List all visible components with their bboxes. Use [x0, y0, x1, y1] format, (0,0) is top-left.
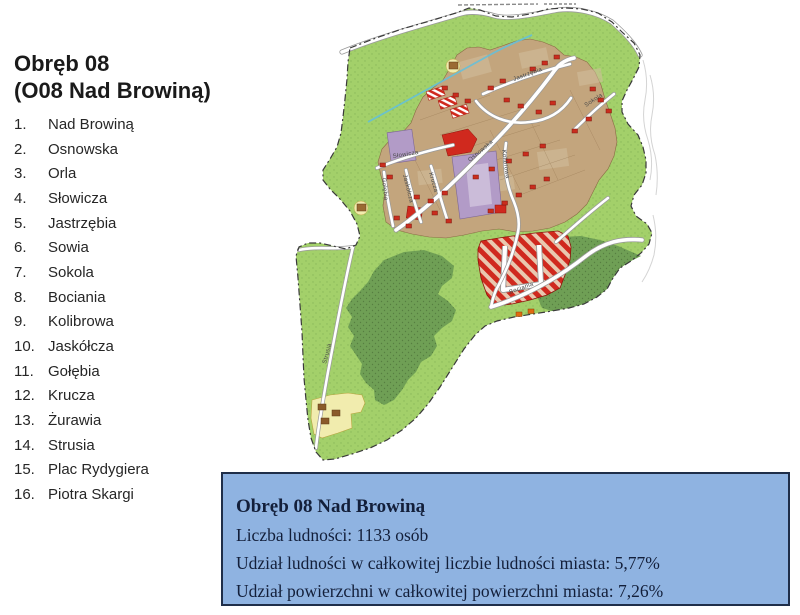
- street-number: 16.: [14, 486, 48, 503]
- street-name: Jaskółcza: [48, 338, 114, 355]
- street-number: 7.: [14, 264, 48, 281]
- info-area-share-line: Udział powierzchni w całkowitej powierzc…: [236, 577, 774, 605]
- street-list-item: 15.Plac Rydygiera: [14, 458, 149, 483]
- street-name: Sokola: [48, 264, 94, 281]
- street-list-item: 11.Gołębia: [14, 359, 149, 384]
- street-number: 14.: [14, 437, 48, 454]
- street-number: 9.: [14, 313, 48, 330]
- street-number: 5.: [14, 215, 48, 232]
- street-list-item: 14.Strusia: [14, 433, 149, 458]
- street-number: 15.: [14, 461, 48, 478]
- street-number: 4.: [14, 190, 48, 207]
- district-map-svg: Osnowska Słowicza Jastrzębia Sokola Koli…: [290, 0, 660, 465]
- street-list: 1.Nad Browiną 2.Osnowska 3.Orla 4.Słowic…: [14, 112, 149, 507]
- page-title: Obręb 08 (O08 Nad Browiną): [14, 50, 211, 104]
- district-title-line2: (O08 Nad Browiną): [14, 77, 211, 104]
- street-name: Orla: [48, 165, 76, 182]
- street-list-item: 13.Żurawia: [14, 408, 149, 433]
- street-name: Słowicza: [48, 190, 107, 207]
- street-list-item: 9.Kolibrowa: [14, 310, 149, 335]
- street-number: 13.: [14, 412, 48, 429]
- street-list-item: 7.Sokola: [14, 260, 149, 285]
- info-box-title: Obręb 08 Nad Browiną: [236, 493, 774, 521]
- street-name: Żurawia: [48, 412, 101, 429]
- street-number: 10.: [14, 338, 48, 355]
- street-list-item: 16.Piotra Skargi: [14, 482, 149, 507]
- district-info-box: Obręb 08 Nad Browiną Liczba ludności: 11…: [221, 472, 790, 606]
- district-title-line1: Obręb 08: [14, 50, 211, 77]
- street-name: Jastrzębia: [48, 215, 116, 232]
- street-name: Strusia: [48, 437, 95, 454]
- street-number: 12.: [14, 387, 48, 404]
- street-list-item: 12.Krucza: [14, 384, 149, 409]
- street-name: Kolibrowa: [48, 313, 114, 330]
- street-name: Plac Rydygiera: [48, 461, 149, 478]
- street-name: Bociania: [48, 289, 106, 306]
- street-name: Krucza: [48, 387, 95, 404]
- district-slide: Obręb 08 (O08 Nad Browiną) 1.Nad Browiną…: [0, 0, 800, 615]
- street-list-item: 4.Słowicza: [14, 186, 149, 211]
- street-number: 3.: [14, 165, 48, 182]
- map-fineprint-marks: [458, 4, 576, 5]
- street-name: Gołębia: [48, 363, 100, 380]
- street-list-item: 3.Orla: [14, 161, 149, 186]
- street-list-item: 8.Bociania: [14, 285, 149, 310]
- info-population-line: Liczba ludności: 1133 osób: [236, 521, 774, 549]
- street-list-item: 2.Osnowska: [14, 137, 149, 162]
- street-name: Nad Browiną: [48, 116, 134, 133]
- street-name: Piotra Skargi: [48, 486, 134, 503]
- street-list-item: 6.Sowia: [14, 235, 149, 260]
- street-number: 1.: [14, 116, 48, 133]
- street-list-item: 1.Nad Browiną: [14, 112, 149, 137]
- street-list-item: 10.Jaskółcza: [14, 334, 149, 359]
- street-number: 11.: [14, 363, 48, 380]
- street-name: Sowia: [48, 239, 89, 256]
- street-name: Osnowska: [48, 141, 118, 158]
- info-population-share-line: Udział ludności w całkowitej liczbie lud…: [236, 549, 774, 577]
- street-number: 2.: [14, 141, 48, 158]
- street-list-item: 5.Jastrzębia: [14, 211, 149, 236]
- district-map: Osnowska Słowicza Jastrzębia Sokola Koli…: [290, 0, 660, 465]
- street-number: 6.: [14, 239, 48, 256]
- street-number: 8.: [14, 289, 48, 306]
